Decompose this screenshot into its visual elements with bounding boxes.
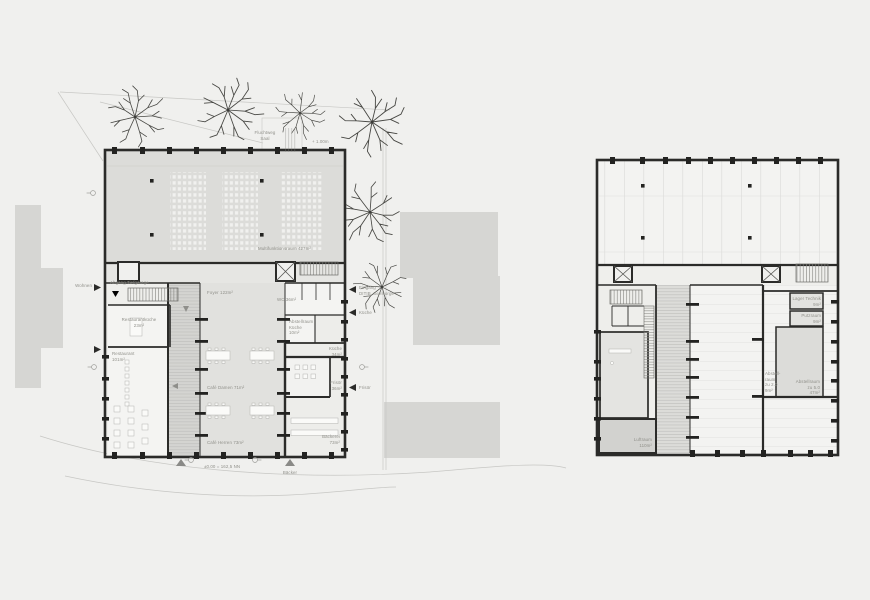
floor-plan-drawing (0, 0, 870, 600)
left-plan-ground-floor (87, 128, 369, 466)
right-plan-upper-floor (594, 157, 839, 457)
architectural-drawing-canvas: Fluchtweg Saal + 1.00m Multifunktionsrau… (0, 0, 870, 600)
